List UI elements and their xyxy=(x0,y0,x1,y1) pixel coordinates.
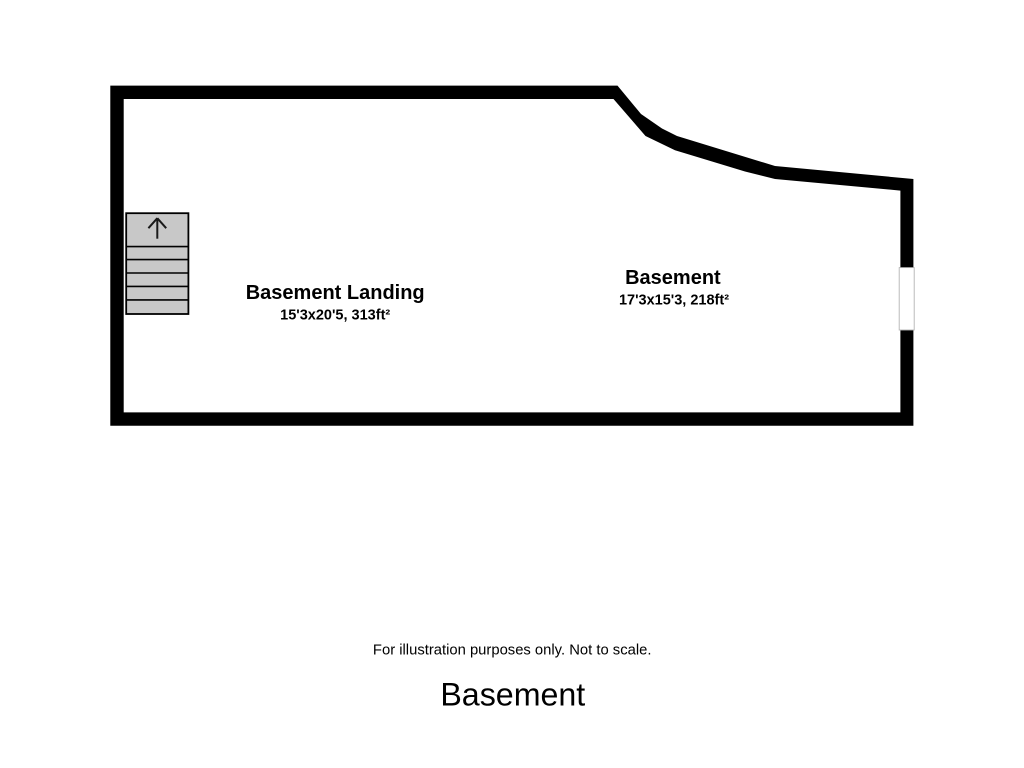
svg-text:Basement Landing: Basement Landing xyxy=(246,282,425,304)
svg-text:15'3x20'5, 313ft²: 15'3x20'5, 313ft² xyxy=(280,307,390,323)
svg-text:For illustration purposes only: For illustration purposes only. Not to s… xyxy=(373,643,652,659)
svg-text:17'3x15'3, 218ft²: 17'3x15'3, 218ft² xyxy=(619,292,729,308)
svg-text:Basement: Basement xyxy=(440,677,585,713)
svg-text:Basement: Basement xyxy=(625,267,721,289)
